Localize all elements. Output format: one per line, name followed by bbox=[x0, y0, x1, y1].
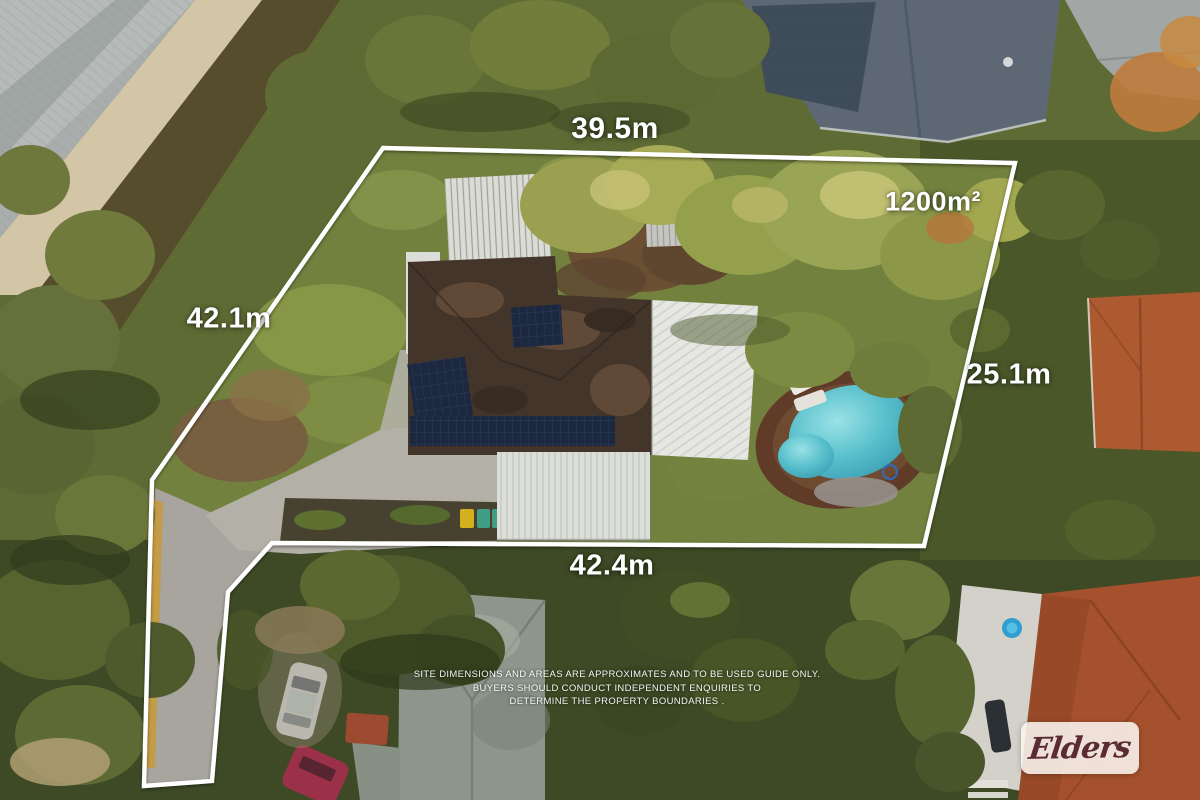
elders-logo: Elders bbox=[1021, 722, 1139, 774]
wheelie-bin-green bbox=[477, 509, 490, 528]
disclaimer-text: SITE DIMENSIONS AND AREAS ARE APPROXIMAT… bbox=[357, 668, 877, 709]
dimension-label-bottom: 42.4m bbox=[570, 550, 655, 583]
elders-logo-text: Elders bbox=[1027, 730, 1133, 767]
area-label: 1200m² bbox=[885, 187, 981, 218]
disclaimer-line-3: DETERMINE THE PROPERTY BOUNDARIES . bbox=[357, 695, 877, 709]
garage-roof bbox=[497, 452, 650, 540]
aerial-photo-stage: 39.5m 1200m² 42.1m 25.1m 42.4m SITE DIME… bbox=[0, 0, 1200, 800]
disclaimer-line-1: SITE DIMENSIONS AND AREAS ARE APPROXIMAT… bbox=[357, 668, 877, 682]
pool-lobe bbox=[778, 434, 834, 478]
gravel-strip bbox=[814, 477, 898, 507]
right-neighbor-house bbox=[1088, 292, 1200, 452]
dimension-label-left: 42.1m bbox=[187, 303, 272, 336]
dimension-label-top: 39.5m bbox=[571, 112, 659, 146]
brick-chimney bbox=[345, 713, 389, 746]
dimension-label-right: 25.1m bbox=[967, 359, 1052, 392]
wheelie-bin-yellow bbox=[460, 509, 474, 528]
disclaimer-line-2: BUYERS SHOULD CONDUCT INDEPENDENT ENQUIR… bbox=[357, 681, 877, 695]
